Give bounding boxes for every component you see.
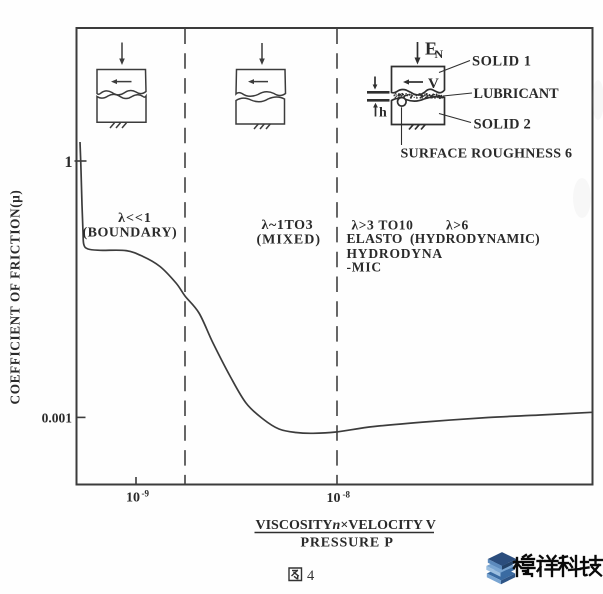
svg-text:SOLID 1: SOLID 1 — [472, 54, 532, 70]
svg-text:1: 1 — [65, 154, 73, 171]
svg-text:ELASTO (HYDRODYNAMIC): ELASTO (HYDRODYNAMIC) — [347, 231, 540, 246]
svg-text:VISCOSITYn×VELOCITY V: VISCOSITYn×VELOCITY V — [256, 518, 436, 533]
svg-text:10: 10 — [327, 491, 341, 506]
svg-text:0.001: 0.001 — [42, 411, 73, 426]
svg-text:-9: -9 — [142, 489, 150, 499]
svg-text:4: 4 — [307, 568, 315, 584]
svg-text:COEFFICIENT OF FRICTION(μ): COEFFICIENT OF FRICTION(μ) — [8, 190, 23, 405]
svg-text:-8: -8 — [343, 490, 351, 500]
svg-text:(MIXED): (MIXED) — [257, 233, 322, 248]
svg-text:λ~1TO3: λ~1TO3 — [262, 218, 314, 233]
svg-text:PRESSURE P: PRESSURE P — [301, 536, 394, 551]
svg-text:N: N — [435, 47, 444, 61]
svg-text:SOLID 2: SOLID 2 — [474, 117, 531, 133]
svg-text:LUBRICANT: LUBRICANT — [474, 86, 560, 102]
svg-text:-MIC: -MIC — [347, 260, 382, 275]
svg-text:SURFACE ROUGHNESS 6: SURFACE ROUGHNESS 6 — [401, 147, 573, 162]
svg-text:10: 10 — [126, 491, 140, 506]
svg-text:λ<<1: λ<<1 — [118, 211, 152, 226]
svg-text:h: h — [379, 106, 387, 121]
svg-text:(BOUNDARY): (BOUNDARY) — [83, 226, 178, 241]
svg-text:V: V — [428, 76, 439, 92]
